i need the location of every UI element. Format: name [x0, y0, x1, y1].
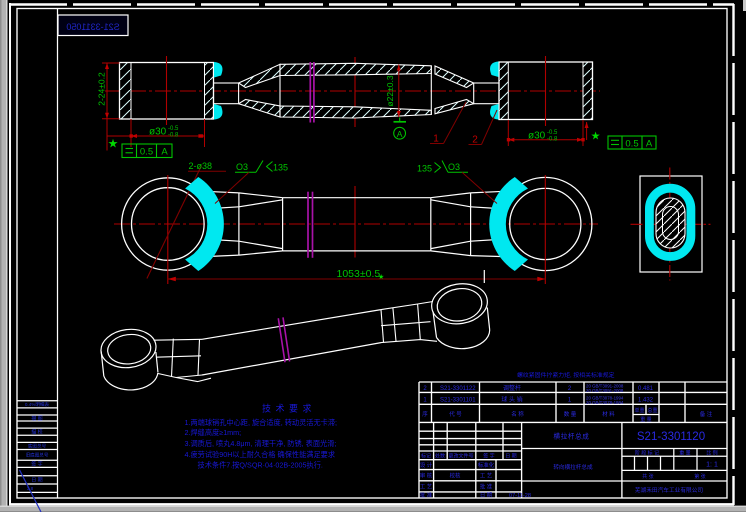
svg-text:名 称: 名 称 [511, 410, 524, 418]
svg-text:★: ★ [378, 273, 384, 281]
svg-text:球 头 销: 球 头 销 [501, 396, 522, 404]
svg-text:审 核: 审 核 [420, 472, 433, 480]
svg-text:日 期: 日 期 [31, 478, 42, 484]
svg-text:4.疲劳试验90H以上耐久合格 确保性能满足要求: 4.疲劳试验90H以上耐久合格 确保性能满足要求 [185, 450, 336, 459]
svg-text:-0.5: -0.5 [547, 130, 558, 136]
svg-text:校核: 校核 [450, 472, 461, 480]
svg-text:★: ★ [108, 137, 119, 151]
svg-text:重 量: 重 量 [640, 416, 651, 423]
svg-text:单重: 单重 [634, 407, 644, 414]
svg-text:135: 135 [273, 163, 288, 173]
svg-text:1053±0.5: 1053±0.5 [337, 268, 381, 280]
svg-text:处数: 处数 [435, 453, 445, 460]
svg-text:螺纹紧固件拧紧力矩, 按相关标准规定: 螺纹紧固件拧紧力矩, 按相关标准规定 [517, 371, 615, 379]
svg-text:1: 1 [433, 134, 439, 145]
svg-text:0.5: 0.5 [625, 139, 638, 150]
svg-text:标记: 标记 [421, 453, 431, 460]
svg-text:A: A [397, 129, 403, 139]
svg-text:0.481: 0.481 [638, 386, 654, 392]
svg-text:设 计: 设 计 [420, 461, 433, 469]
svg-text:日 期: 日 期 [480, 492, 492, 499]
svg-text:0.4%明细表: 0.4%明细表 [25, 401, 50, 408]
svg-text:1.两端球销孔中心距, 旋合适度, 转动灵活无卡滞;: 1.两端球销孔中心距, 旋合适度, 转动灵活无卡滞; [185, 418, 338, 427]
svg-text:签 字: 签 字 [483, 453, 494, 460]
svg-text:O3: O3 [236, 162, 248, 172]
svg-text:技 术 要 求: 技 术 要 求 [262, 403, 313, 414]
svg-text:数 量: 数 量 [564, 410, 577, 418]
svg-text:1: 1: 1: 1 [706, 462, 718, 469]
svg-text:ø30: ø30 [528, 131, 546, 142]
svg-text:O3: O3 [448, 162, 460, 172]
svg-text:更改文件号: 更改文件号 [448, 453, 473, 460]
svg-text:1.432: 1.432 [638, 398, 654, 404]
svg-text:阶 段 标 记: 阶 段 标 记 [635, 450, 659, 457]
svg-text:批 准: 批 准 [420, 491, 433, 499]
svg-text:2: 2 [472, 135, 478, 146]
svg-text:材 料: 材 料 [602, 410, 615, 418]
svg-text:A: A [161, 147, 168, 158]
svg-text:序: 序 [422, 410, 428, 418]
svg-text:备 注: 备 注 [700, 410, 713, 418]
svg-text:135: 135 [417, 164, 432, 174]
svg-text:共 张: 共 张 [642, 473, 653, 480]
svg-text:-0.8: -0.8 [547, 137, 558, 143]
svg-text:底图总号: 底图总号 [28, 443, 47, 450]
svg-text:20 GB/T3091-2008: 20 GB/T3091-2008 [586, 388, 624, 393]
svg-text:3.调质后, 喷丸4.8μm, 清理干净, 防锈, 表面光滑: 3.调质后, 喷丸4.8μm, 清理干净, 防锈, 表面光滑; [185, 439, 337, 448]
svg-text:工 艺: 工 艺 [420, 484, 433, 491]
svg-text:2.焊缝高度≥1mm;: 2.焊缝高度≥1mm; [185, 428, 242, 437]
svg-text:横拉杆总成: 横拉杆总成 [554, 432, 590, 441]
svg-text:描 校: 描 校 [31, 429, 42, 436]
svg-text:调整杆: 调整杆 [503, 384, 521, 392]
svg-text:工 艺: 工 艺 [480, 473, 493, 480]
svg-text:0.5: 0.5 [140, 147, 153, 158]
svg-text:S21-3301122: S21-3301122 [440, 386, 476, 392]
svg-text:07-11-28: 07-11-28 [509, 493, 531, 499]
svg-text:标准化: 标准化 [478, 461, 495, 469]
svg-text:代 号: 代 号 [449, 410, 462, 418]
svg-text:★: ★ [591, 131, 601, 143]
svg-text:S21-3301120: S21-3301120 [637, 431, 705, 443]
svg-text:比 例: 比 例 [706, 450, 717, 457]
svg-text:S21-3311050: S21-3311050 [66, 22, 119, 32]
svg-text:芜湖禾田汽车工业有限公司: 芜湖禾田汽车工业有限公司 [635, 486, 704, 494]
svg-text:ø22±0.3: ø22±0.3 [385, 75, 395, 106]
svg-text:旧底图总号: 旧底图总号 [26, 452, 49, 459]
svg-text:20 GB/T3078-1994: 20 GB/T3078-1994 [586, 400, 624, 405]
svg-text:-0.5: -0.5 [168, 126, 179, 132]
svg-text:技术条件7.按Q/SQR·04·02B-2005执行.: 技术条件7.按Q/SQR·04·02B-2005执行. [198, 461, 323, 470]
svg-text:第 张: 第 张 [694, 473, 705, 480]
svg-text:S21-3301101: S21-3301101 [440, 398, 476, 404]
svg-text:A: A [646, 139, 653, 150]
svg-text:ø30: ø30 [149, 127, 167, 138]
svg-text:转向横拉杆总成: 转向横拉杆总成 [553, 463, 593, 471]
svg-text:总重: 总重 [647, 407, 657, 414]
svg-text:2-ø38: 2-ø38 [189, 161, 213, 171]
svg-text:日 期: 日 期 [505, 454, 516, 460]
svg-text:重 量: 重 量 [679, 450, 690, 457]
svg-text:2-24±0.2: 2-24±0.2 [97, 72, 107, 106]
svg-text:批 准: 批 准 [480, 483, 493, 491]
svg-text:签 字: 签 字 [31, 461, 42, 468]
svg-text:描 图: 描 图 [31, 415, 42, 422]
svg-text:-0.8: -0.8 [168, 133, 179, 139]
